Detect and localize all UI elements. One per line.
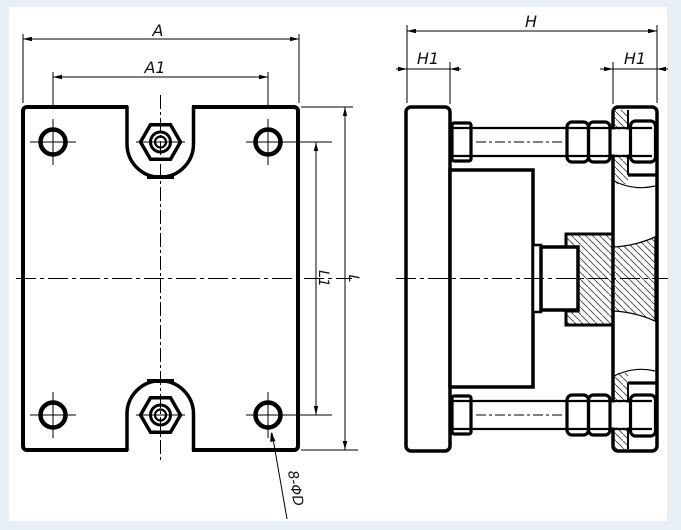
dim-label-H1-right: H1 (624, 49, 646, 68)
dim-label-L1: L1 (315, 270, 331, 287)
dim-label-A1: A1 (143, 58, 165, 77)
dim-label-H: H (525, 12, 537, 31)
dim-label-L: L (345, 275, 361, 283)
drawing-page: A A1 L1 L 8-ΦD (0, 0, 681, 530)
dim-label-H1-left: H1 (417, 49, 439, 68)
dim-label-A: A (152, 21, 164, 40)
technical-drawing: A A1 L1 L 8-ΦD (0, 0, 681, 530)
